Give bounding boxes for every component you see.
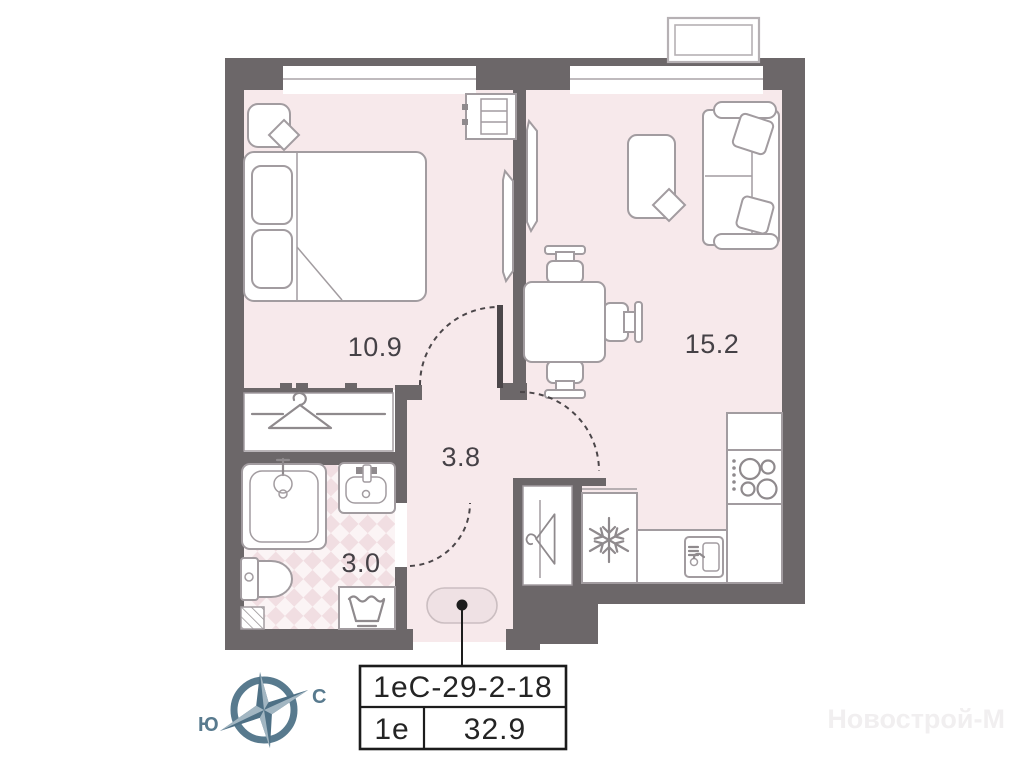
wardrobe-box (244, 393, 393, 451)
living-area-label: 15.2 (685, 329, 740, 359)
bedroom-window (283, 66, 476, 94)
wall-bathroom-right-lower (395, 577, 407, 650)
wardrobe (244, 393, 393, 451)
watermark: Новострой-М (827, 704, 1005, 734)
rail-tab-1 (280, 383, 292, 389)
bathroom-area-label: 3.0 (341, 548, 380, 578)
floor-plan-canvas: 10.9 15.2 3.8 3.0 1еС-29-2-18 1е 32.9 С … (0, 0, 1012, 768)
chair-right-back (635, 302, 642, 342)
toilet-tank (241, 558, 258, 600)
pillow-1 (252, 166, 292, 224)
unit-code: 1еС-29-2-18 (373, 671, 552, 704)
rail-tab-2 (296, 383, 308, 389)
living-tv (527, 121, 537, 231)
rail-tab-3 (345, 383, 357, 389)
washing-machine (339, 587, 395, 629)
chair-top-seat (547, 261, 583, 283)
hallway-area-label: 3.8 (441, 442, 480, 472)
total-area: 32.9 (464, 713, 526, 746)
wall-bottom-kitchen (598, 582, 805, 604)
chair-bottom-back (545, 390, 585, 398)
entry-step-block (513, 582, 598, 644)
info-table: 1еС-29-2-18 1е 32.9 (360, 666, 566, 749)
wall-right (782, 58, 805, 604)
cabinet-handle-1 (462, 104, 468, 110)
floor-plan-page: 10.9 15.2 3.8 3.0 1еС-29-2-18 1е 32.9 С … (0, 0, 1012, 768)
compass-icon: С Ю (198, 672, 326, 748)
wall-bathroom-right-jamb (395, 567, 407, 577)
bath-sink-tap-left (356, 467, 363, 474)
compass-north-label: С (312, 686, 326, 708)
shower-tray (242, 464, 326, 549)
layout-type: 1е (374, 713, 409, 746)
dining-table (524, 282, 605, 362)
bedroom-door-leaf (497, 305, 503, 388)
compass-south-label: Ю (198, 714, 219, 736)
wall-bottom-left (225, 629, 413, 650)
bedroom-tv (503, 171, 513, 281)
cabinet-handle-2 (462, 119, 468, 125)
chair-bottom-seat (547, 361, 583, 383)
vent-shaft-icon (241, 607, 264, 629)
sofa-armrest-bottom (714, 234, 778, 249)
bedroom-cabinet (466, 94, 516, 139)
toilet-icon (258, 561, 292, 597)
living-window (570, 66, 763, 94)
bath-sink-faucet (363, 465, 371, 482)
closet-stub-wall (513, 478, 606, 486)
closet-right-wall (572, 486, 582, 585)
closet-box (523, 486, 572, 585)
bedroom-area-label: 10.9 (348, 332, 403, 362)
closet-left-wall (513, 478, 523, 585)
sofa-pillow-2 (735, 195, 774, 234)
pillow-2 (252, 230, 292, 288)
wall-bathroom-right-upper (395, 385, 407, 503)
hall-closet (523, 486, 572, 585)
